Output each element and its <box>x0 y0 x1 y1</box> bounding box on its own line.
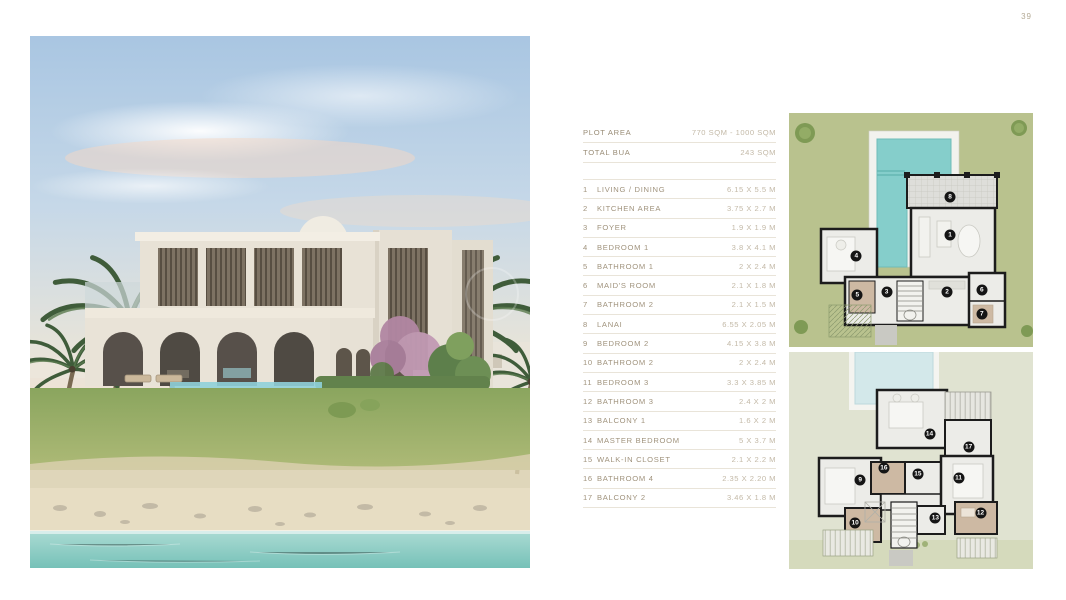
row-label: 12BATHROOM 3 <box>583 397 654 406</box>
balcony-2-hatch <box>945 392 991 420</box>
ground-floor-plan: 12345678 <box>789 113 1033 347</box>
villa-photo <box>30 36 530 568</box>
row-value: 243 SQM <box>740 148 776 157</box>
row-label: 14MASTER BEDROOM <box>583 436 680 445</box>
side-deck <box>829 305 871 337</box>
spec-room-row: 7BATHROOM 22.1 X 1.5 M <box>583 296 776 315</box>
spec-room-row: 1LIVING / DINING6.15 X 5.5 M <box>583 180 776 199</box>
row-value: 2.35 X 2.20 M <box>722 474 776 483</box>
row-label: 16BATHROOM 4 <box>583 474 654 483</box>
row-number: 4 <box>583 243 597 252</box>
room-number-badge-15: 15 <box>912 468 923 479</box>
page-number: 39 <box>1021 12 1032 21</box>
spec-room-row: 3FOYER1.9 X 1.9 M <box>583 219 776 238</box>
row-number: 9 <box>583 339 597 348</box>
room-number-badge-5: 5 <box>852 289 863 300</box>
room-number-badge-10: 10 <box>850 517 861 528</box>
room-number-badge-12: 12 <box>975 508 986 519</box>
room-number-badge-14: 14 <box>924 429 935 440</box>
row-value: 6.15 X 5.5 M <box>727 185 776 194</box>
row-label: 2KITCHEN AREA <box>583 204 661 213</box>
room-number-badge-3: 3 <box>881 286 892 297</box>
roof-deck-right <box>957 538 997 558</box>
spec-room-row: 16BATHROOM 42.35 X 2.20 M <box>583 469 776 488</box>
spec-summary: PLOT AREA770 SQM - 1000 SQMTOTAL BUA243 … <box>583 123 776 163</box>
row-number: 8 <box>583 320 597 329</box>
spec-room-row: 2KITCHEN AREA3.75 X 2.7 M <box>583 199 776 218</box>
room-number-badge-9: 9 <box>855 475 866 486</box>
spec-room-row: 15WALK-IN CLOSET2.1 X 2.2 M <box>583 450 776 469</box>
row-number: 17 <box>583 493 597 502</box>
room-number-badge-7: 7 <box>976 308 987 319</box>
row-value: 4.15 X 3.8 M <box>727 339 776 348</box>
row-label: 11BEDROOM 3 <box>583 378 649 387</box>
row-value: 2.1 X 1.8 M <box>732 281 776 290</box>
room-number-badge-4: 4 <box>851 250 862 261</box>
villa-scene <box>30 36 530 568</box>
row-label: 15WALK-IN CLOSET <box>583 455 671 464</box>
row-label: 17BALCONY 2 <box>583 493 646 502</box>
row-number: 6 <box>583 281 597 290</box>
row-number: 14 <box>583 436 597 445</box>
entry-canopy <box>889 550 913 566</box>
row-value: 2.1 X 1.5 M <box>732 300 776 309</box>
row-label: 3FOYER <box>583 223 627 232</box>
bathroom-3 <box>955 502 997 534</box>
row-value: 2.1 X 2.2 M <box>732 455 776 464</box>
row-value: 3.46 X 1.8 M <box>727 493 776 502</box>
row-label: 10BATHROOM 2 <box>583 358 654 367</box>
lawn <box>30 388 530 470</box>
spec-room-row: 8LANAI6.55 X 2.05 M <box>583 315 776 334</box>
room-number-badge-8: 8 <box>945 192 956 203</box>
row-number: 16 <box>583 474 597 483</box>
row-number: 15 <box>583 455 597 464</box>
row-value: 3.3 X 3.85 M <box>727 378 776 387</box>
spec-summary-row: PLOT AREA770 SQM - 1000 SQM <box>583 123 776 143</box>
row-value: 2 X 2.4 M <box>739 262 776 271</box>
spec-room-row: 13BALCONY 11.6 X 2 M <box>583 412 776 431</box>
row-label: TOTAL BUA <box>583 148 631 157</box>
row-label: 1LIVING / DINING <box>583 185 665 194</box>
row-label: 13BALCONY 1 <box>583 416 646 425</box>
spec-summary-row: TOTAL BUA243 SQM <box>583 143 776 163</box>
spec-room-row: 6MAID'S ROOM2.1 X 1.8 M <box>583 276 776 295</box>
row-value: 2 X 2.4 M <box>739 358 776 367</box>
spec-room-row: 17BALCONY 23.46 X 1.8 M <box>583 489 776 508</box>
roof-deck-left <box>823 530 873 556</box>
row-number: 7 <box>583 300 597 309</box>
row-label: 4BEDROOM 1 <box>583 243 649 252</box>
row-label: 8LANAI <box>583 320 622 329</box>
row-label: 5BATHROOM 1 <box>583 262 654 271</box>
walk-in-closet <box>905 462 941 496</box>
shoreline-foam <box>30 530 530 534</box>
row-number: 1 <box>583 185 597 194</box>
spec-room-list: 1LIVING / DINING6.15 X 5.5 M2KITCHEN ARE… <box>583 179 776 508</box>
sea-water <box>30 531 530 568</box>
spec-room-row: 9BEDROOM 24.15 X 3.8 M <box>583 334 776 353</box>
row-number: 5 <box>583 262 597 271</box>
first-floor-plan: 91011121314151617 <box>789 352 1033 569</box>
first-floor-plan-drawing <box>789 352 1033 569</box>
row-value: 1.9 X 1.9 M <box>732 223 776 232</box>
brochure-page: 39 <box>0 0 1066 600</box>
row-label: 6MAID'S ROOM <box>583 281 656 290</box>
room-number-badge-17: 17 <box>963 441 974 452</box>
spec-room-row: 12BATHROOM 32.4 X 2 M <box>583 392 776 411</box>
walkway <box>875 325 897 345</box>
room-number-badge-13: 13 <box>930 512 941 523</box>
row-number: 3 <box>583 223 597 232</box>
row-label: 9BEDROOM 2 <box>583 339 649 348</box>
spec-room-row: 14MASTER BEDROOM5 X 3.7 M <box>583 431 776 450</box>
row-value: 5 X 3.7 M <box>739 436 776 445</box>
room-number-badge-2: 2 <box>942 286 953 297</box>
row-number: 12 <box>583 397 597 406</box>
stairs <box>897 281 923 321</box>
row-number: 13 <box>583 416 597 425</box>
row-number: 11 <box>583 378 597 387</box>
spec-room-row: 4BEDROOM 13.8 X 4.1 M <box>583 238 776 257</box>
spec-room-row: 5BATHROOM 12 X 2.4 M <box>583 257 776 276</box>
room-number-badge-6: 6 <box>976 285 987 296</box>
room-number-badge-16: 16 <box>878 462 889 473</box>
room-number-badge-11: 11 <box>953 472 964 483</box>
row-label: 7BATHROOM 2 <box>583 300 654 309</box>
row-number: 10 <box>583 358 597 367</box>
row-value: 2.4 X 2 M <box>739 397 776 406</box>
row-value: 3.75 X 2.7 M <box>727 204 776 213</box>
row-value: 1.6 X 2 M <box>739 416 776 425</box>
spec-table: PLOT AREA770 SQM - 1000 SQMTOTAL BUA243 … <box>583 123 776 508</box>
hedge <box>315 376 490 390</box>
ground-floor-plan-drawing <box>789 113 1033 347</box>
row-value: 6.55 X 2.05 M <box>722 320 776 329</box>
row-label: PLOT AREA <box>583 128 631 137</box>
row-value: 770 SQM - 1000 SQM <box>692 128 776 137</box>
room-number-badge-1: 1 <box>945 229 956 240</box>
spec-room-row: 10BATHROOM 22 X 2.4 M <box>583 354 776 373</box>
spec-room-row: 11BEDROOM 33.3 X 3.85 M <box>583 373 776 392</box>
row-value: 3.8 X 4.1 M <box>732 243 776 252</box>
row-number: 2 <box>583 204 597 213</box>
